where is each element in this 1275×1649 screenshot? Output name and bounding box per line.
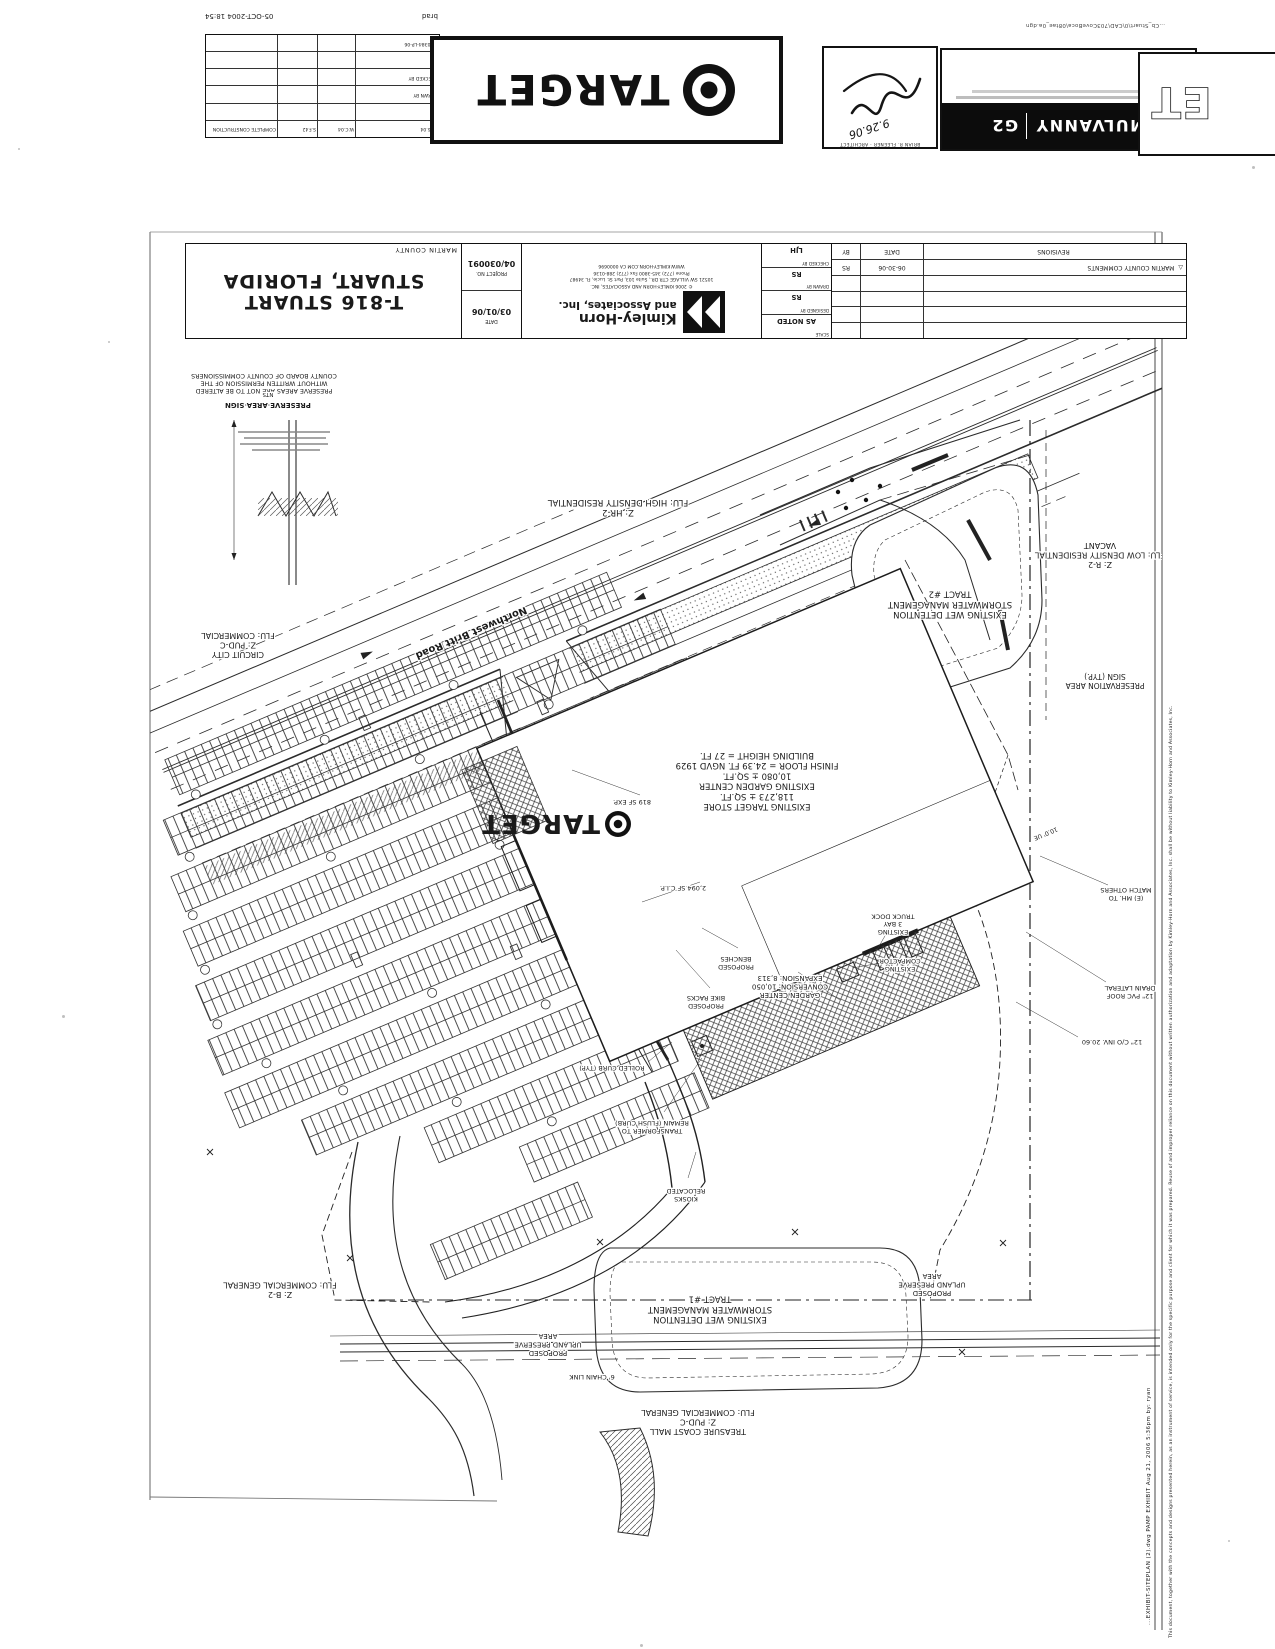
scale-value: AS NOTED [777,317,816,325]
crosswalk [800,511,827,531]
corner-logo-letters: ET [1150,78,1211,127]
cell [317,69,355,85]
architect-name: BRIAN R. FLEENER · ARCHITECT [824,141,936,146]
plan-label-preservation-sign: PRESERVATION AREASIGN (TYP.) [1065,672,1145,690]
illegible-address-line [972,90,1165,93]
outline-logo-icon: ET [1144,58,1275,154]
cad-file-path: ...Cb_Stuart\0\CAD\703CoveBoca\08tae_0a.… [790,22,1165,28]
plan-label-line: Z: R-2 [1088,560,1112,569]
plan-label-bike-racks: PROPOSEDBIKE RACKS [687,994,725,1010]
plan-label-rolled-curb: ROLLED CURB (TYP) [579,1064,644,1072]
firm-name: Kimley-Horn [558,310,676,325]
plan-label-preserve-note: PRESERVE AREAS ARE NOT TO BE ALTEREDWITH… [191,372,337,394]
approval-table: 4.26.04 W.C.04 S.F.42 COMPLETE CONSTRUCT… [205,34,440,138]
plan-label-line: GARDEN CENTER [760,991,821,999]
plan-label-circuit-city: CIRCUIT CITYZ: PUD-CFLU: COMMERCIAL [201,631,275,659]
plan-label-line: FLU: HIGH DENSITY RESIDENTIAL [547,497,688,507]
plan-label-line: WITHOUT WRITTEN PERMISSION OF THE [201,379,328,386]
plan-label-line: KIOSKS [674,1195,698,1203]
sign-note-lines [238,432,330,450]
table-row: CHECKED BY [206,68,439,85]
plan-label-compactor: EXISTINGCOMPACTOR [879,957,921,973]
cell [277,52,317,68]
plan-label-line: FLU: LOW DENSITY RESIDENTIAL [1034,550,1165,559]
plan-label-line: Z: HR-2 [602,507,634,517]
plan-label-line: 819 SF EXP. [613,798,651,806]
plan-label-line: PROPOSED [718,963,754,971]
plan-label-zone-b2: Z: B-2FLU: COMMERCIAL GENERAL [223,1280,337,1299]
plan-label-line: PROPOSED [688,1002,724,1010]
firm-name-2: and Associates, Inc. [558,299,676,310]
plan-label-line: DRAIN LATERAL [1104,984,1155,992]
firm-copyright: © 2006 KIMLEY-HORN AND ASSOCIATES, INC. [570,281,714,288]
plan-label-zone-r2: Z: R-2FLU: LOW DENSITY RESIDENTIALVACANT [1034,541,1165,569]
plan-label-line: UPLAND PRESERVE [514,1341,581,1349]
cell [277,69,317,85]
project-no-label: PROJECT NO. [476,270,507,275]
cell [355,52,439,68]
plot-stamp-vertical: ...EXHIBIT-SITEPLAN (2).dwg PAMP EXHIBIT… [1146,1387,1152,1625]
plan-label-transformer: TRANSFORMER TOREMAIN (FLUSH CURB) [615,1119,689,1135]
cell: S.F.42 [277,121,317,137]
engineer-block: Kimley-Horn and Associates, Inc. © 2006 … [521,244,761,338]
table-row [832,322,1186,338]
cell [355,104,439,120]
table-row [206,103,439,120]
firm-address: 10521 SW VILLAGE CTR DR., Suite 103, Por… [570,275,714,282]
plan-label-line: BIKE RACKS [687,994,725,1002]
drawn-by-cell: DRAWN BY RS [762,267,831,291]
cell [206,104,277,120]
plan-label-sign-detail-title: PRESERVE AREA SIGN [225,401,311,409]
plan-label-mh-match: (E) MH. TOMATCH OTHERS [1100,886,1151,902]
plan-label-upland-left: PROPOSEDUPLAND PRESERVEAREA [514,1332,581,1357]
corner-logo-partial: ET [1138,52,1275,156]
scale-cell: SCALE AS NOTED [762,314,831,338]
plan-label-line: FLU: COMMERCIAL [201,631,275,640]
plan-label-line: 2,094 SF C.I.P. [660,884,706,892]
cell [206,69,277,85]
mulvanny-brand-suffix: G2 [991,117,1018,136]
plan-label-line: FLU: COMMERCIAL GENERAL [641,1408,755,1417]
plan-label-cip-2094: 2,094 SF C.I.P. [660,884,706,892]
plan-label-line: REMAIN (FLUSH CURB) [615,1119,689,1127]
target-bullseye-icon [680,61,738,119]
plan-label-line: 12" C/O INV. 20.60 [1082,1038,1142,1046]
checked-label: CHECKED BY [802,261,829,266]
checked-by-cell: CHECKED BY LJH [762,244,831,267]
plan-label-line: 3 BAY [884,920,903,928]
table-row [832,291,1186,307]
plan-label-line: EXISTING [885,965,915,973]
plan-label-line: Z: PUD-C [220,640,256,649]
plan-label-line: TRANSFORMER TO [622,1127,683,1135]
revision-delta-icon: △ [1178,264,1183,271]
cell: DRAWN BY [355,86,439,102]
plan-label-line: COMPACTOR [879,957,921,965]
title-block: △ MARTIN COUNTY COMMENTS 06-30-06 RS REV… [185,243,1187,339]
plan-label-line: SIGN (TYP.) [1084,672,1126,681]
plan-label-line: TRACT #2 [929,589,973,599]
plan-label-line: CONVERSION: 10,050 [752,983,828,991]
plan-label-line: UPLAND PRESERVE [898,1281,965,1289]
mulvanny-brand: MULVANNY [1035,117,1146,136]
cell [317,86,355,102]
plan-label-line: VACANT [1084,541,1116,550]
revision-date: 06-30-06 [860,260,923,275]
date-label: DATE [485,318,497,323]
plan-label-zone-hr2: Z: HR-2FLU: HIGH DENSITY RESIDENTIAL [547,497,688,517]
revisions-header-row: REVISIONS DATE BY [832,244,1186,259]
divider [1026,113,1027,139]
project-no-value: 04/030091 [468,259,515,268]
cell: COMPLETE CONSTRUCTION [206,121,277,137]
plan-label-line: RELOCATED [667,1187,706,1195]
plot-info: brad 05-OCT-2004 18:54 [205,12,438,20]
target-logo-stamp: TARGET [430,36,783,144]
kimley-horn-logo-icon [683,291,725,333]
plan-label-sign-detail-nts: NTS [262,391,273,397]
plan-label-line: STORMWATER MANAGEMENT [887,599,1012,609]
designed-value: RS [791,294,801,302]
cell [317,35,355,51]
plan-label-line: EXPANSION: 8,313 [758,974,823,982]
plan-label-line: MATCH OTHERS [1100,886,1151,894]
plan-label-line: NTS [262,391,273,397]
cell [206,86,277,102]
table-row [206,51,439,68]
plan-label-chain-link: 6' CHAIN LINK [569,1373,615,1381]
drawn-label: DRAWN BY [807,285,829,290]
plan-label-co-inv: 12" C/O INV. 20.60 [1082,1038,1142,1046]
designed-label: DESIGNED BY [800,308,829,313]
firm-web: WWW.KIMLEY-HORN.COM CA 0000696 [570,262,714,269]
plan-label-line: PRESERVATION AREA [1065,681,1145,690]
project-number-block: DATE 03/01/06 PROJECT NO. 04/030091 [461,244,521,338]
plan-label-line: FLU: COMMERCIAL GENERAL [223,1280,337,1289]
cell [277,86,317,102]
by-header: BY [832,244,860,259]
signal-poles [836,478,882,510]
cell: 4.26.04 [355,121,439,137]
plan-label-line: CIRCUIT CITY [212,650,264,659]
firm-phone: Phone (772) 345-3800 Fax (772) 288-0136 [570,268,714,275]
revision-entry-row: △ MARTIN COUNTY COMMENTS 06-30-06 RS [832,259,1186,275]
plan-label-line: TRUCK DOCK [871,912,916,920]
plan-label-line: PRESERVE AREA SIGN [225,401,311,409]
drafting-credits: SCALE AS NOTED DESIGNED BY RS DRAWN BY R… [761,244,831,338]
signature-date: 9.26.06 [847,116,891,141]
cell [317,52,355,68]
plan-label-line: FINISH FLOOR = 24.39 FT. NGVD 1929 [676,760,839,770]
revisions-header: REVISIONS [923,244,1186,259]
cell [277,35,317,51]
date-cell: DATE 03/01/06 [462,291,521,339]
cell [317,104,355,120]
plan-label-line: BUILDING HEIGHT = 27 FT. [700,750,814,760]
table-row [832,275,1186,291]
table-row: 05-0384-LP-06 [206,35,439,51]
cell [206,52,277,68]
plan-label-line: TRACT #1 [689,1294,733,1304]
plan-label-line: 118,273 ± SQ.FT. [720,791,794,801]
date-header: DATE [860,244,923,259]
signature-icon: 9.26.06 [830,63,936,141]
plan-label-line: Z: PUD-C [680,1417,716,1426]
revisions-table: △ MARTIN COUNTY COMMENTS 06-30-06 RS REV… [831,244,1186,338]
plan-label-ue: 10.0' UE [1032,825,1058,841]
plan-label-line: 10,080 ± SQ.FT. [723,770,792,780]
date-value: 03/01/06 [472,307,511,316]
disclaimer-vertical: This document, together with the concept… [1168,705,1174,1639]
plan-label-line: STORMWATER MANAGEMENT [647,1304,772,1314]
plan-label-line: AREA [538,1332,557,1340]
cell [206,35,277,51]
table-row: 4.26.04 W.C.04 S.F.42 COMPLETE CONSTRUCT… [206,120,439,137]
plan-label-garden-expansion: GARDEN CENTERCONVERSION: 10,050EXPANSION… [752,974,828,999]
plan-label-line: EXISTING TARGET STORE [703,801,810,811]
plan-label-roof-drain: 12" PVC ROOFDRAIN LATERAL [1104,984,1155,1000]
plan-label-line: ROLLED CURB (TYP) [579,1064,644,1072]
county-label: MARTIN COUNTY [395,246,457,254]
plan-label-line: 12" PVC ROOF [1106,992,1153,1000]
plot-datetime: 05-OCT-2004 18:54 [205,12,273,20]
preserve-sign-detail [232,405,339,585]
designed-by-cell: DESIGNED BY RS [762,291,831,315]
cell: W.C.04 [317,121,355,137]
plot-user: brad [422,12,438,20]
scale-label: SCALE [816,332,829,337]
cell: 05-0384-LP-06 [355,35,439,51]
plan-label-line: EXISTING GARDEN CENTER [699,781,815,791]
project-no-cell: PROJECT NO. 04/030091 [462,244,521,291]
plan-label-line: AREA [922,1272,941,1280]
cell [277,104,317,120]
plan-label-mall: TREASURE COAST MALLZ: PUD-CFLU: COMMERCI… [641,1408,755,1436]
project-title-line1: T-816 STUART [244,291,403,312]
plan-label-line: 10.0' UE [1032,825,1058,841]
plan-label-kiosks: KIOSKSRELOCATED [667,1187,706,1203]
plan-label-line: PROPOSED [913,1289,952,1297]
plan-label-line: (E) MH. TO [1109,894,1144,902]
sheet-title-block: T-816 STUART STUART, FLORIDA MARTIN COUN… [186,244,461,338]
table-row: DRAWN BY [206,85,439,102]
checked-value: LJH [790,246,803,254]
table-row [832,306,1186,322]
scanned-site-plan-sheet: { "document": { "plot_user": "brad", "pl… [0,0,1275,1649]
plan-label-line: TREASURE COAST MALL [649,1427,747,1436]
architect-signature-stamp: BRIAN R. FLEENER · ARCHITECT 9.26.06 [822,46,938,149]
target-wordmark: TARGET [475,66,669,115]
project-title-line2: STUART, FLORIDA [223,270,425,291]
plan-label-line: Z: B-2 [268,1290,292,1299]
plan-label-benches: PROPOSEDBENCHES [718,955,754,971]
plan-target-wordmark: TARGET [481,808,600,838]
drawn-value: RS [791,270,801,278]
plan-label-line: BENCHES [720,955,751,963]
plan-label-line: EXISTING WET DETENTION [653,1314,767,1324]
plan-label-exp-819: 819 SF EXP. [613,798,651,806]
plan-label-line: EXISTING [878,928,908,936]
plan-label-line: COUNTY BOARD OF COUNTY COMMISSIONERS [191,372,337,379]
plan-label-line: 6' CHAIN LINK [569,1373,615,1381]
plan-label-line: PROPOSED [529,1349,568,1357]
revision-by: RS [832,260,860,275]
plan-label-line: EXISTING WET DETENTION [893,609,1007,619]
cell: CHECKED BY [355,69,439,85]
revision-text: MARTIN COUNTY COMMENTS [1087,264,1174,271]
